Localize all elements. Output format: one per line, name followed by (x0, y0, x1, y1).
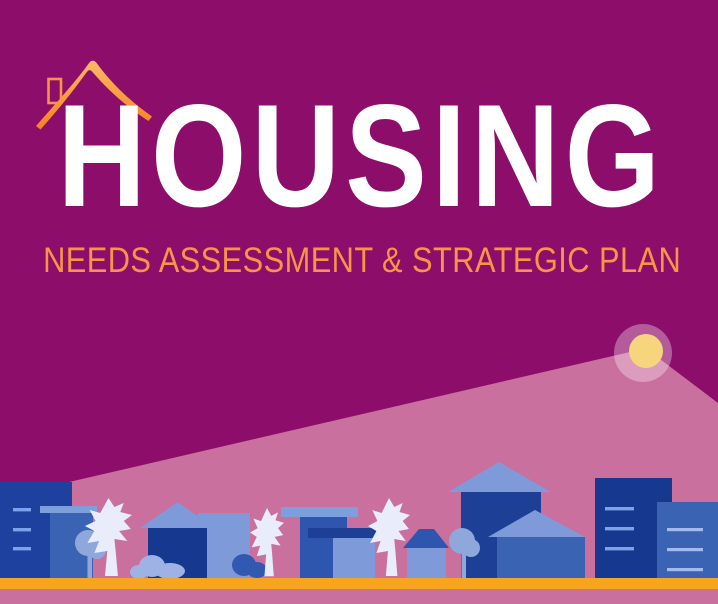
building-cap (281, 507, 358, 517)
poster-title: HOUSING (57, 83, 660, 229)
building-annex-ledge (308, 528, 383, 538)
sun-icon (614, 324, 672, 382)
poster: HOUSING NEEDS ASSESSMENT & STRATEGIC PLA… (0, 0, 718, 604)
ground-road (0, 578, 718, 589)
house-hip-body (407, 548, 446, 578)
poster-subtitle: NEEDS ASSESSMENT & STRATEGIC PLAN (43, 243, 675, 278)
sun-disc (629, 334, 663, 368)
building-flatroof-ledge (40, 506, 97, 513)
building-far-right (657, 502, 718, 578)
building-annex-body (333, 538, 375, 578)
big-house-lower-wall (497, 537, 585, 578)
